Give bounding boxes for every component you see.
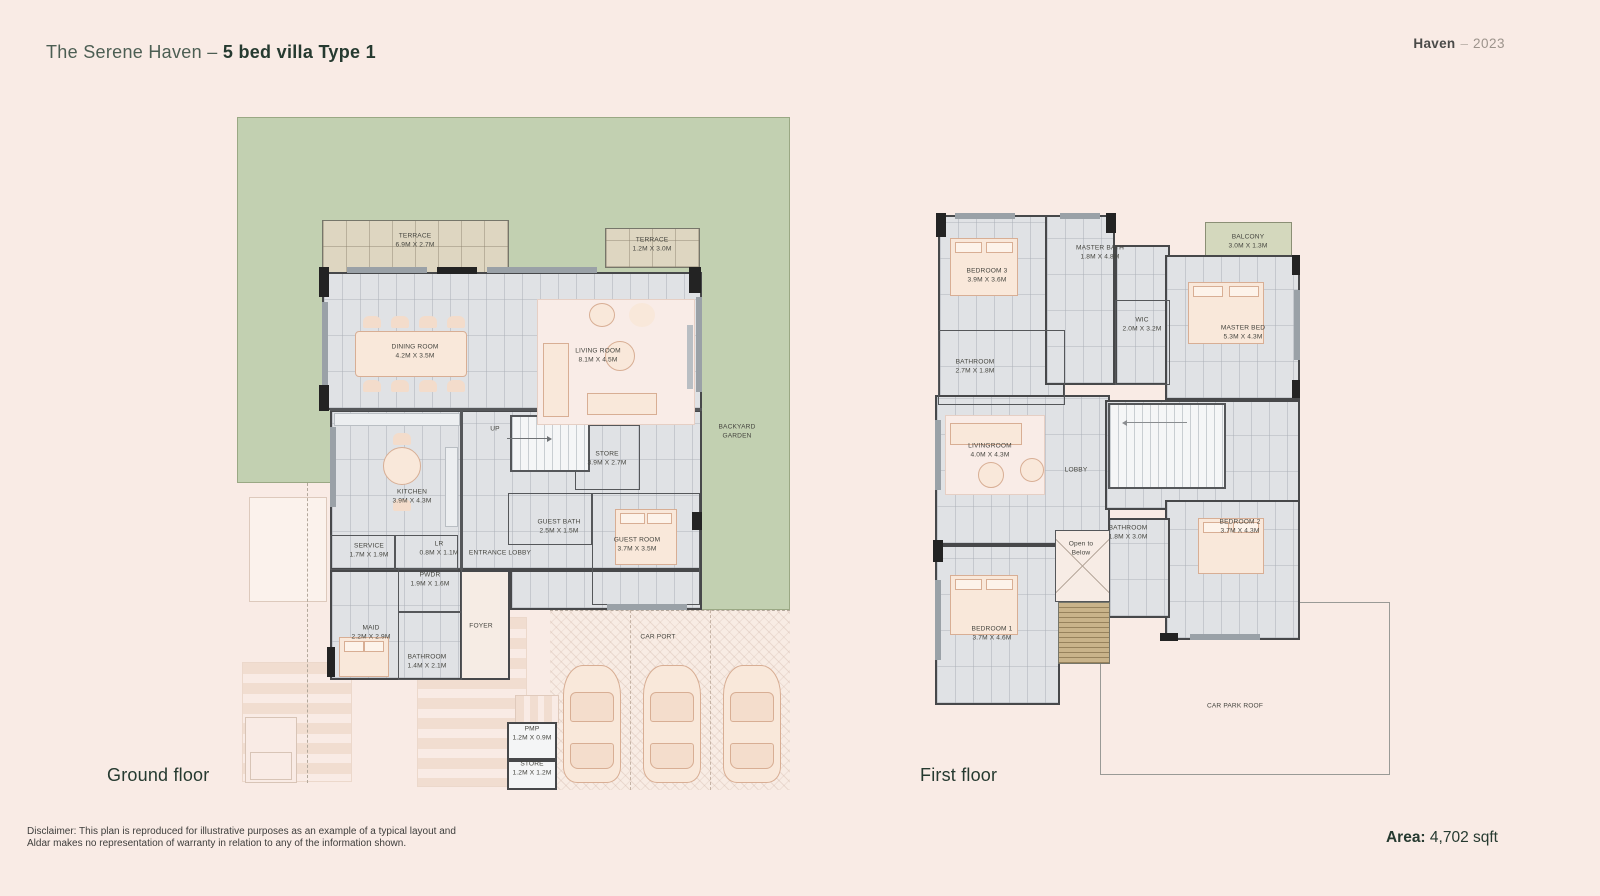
label-car-park-roof: CAR PARK ROOF	[1207, 703, 1263, 712]
first-floor-label: First floor	[920, 765, 997, 786]
label-bathroom-1-4m-x-2-1m: BATHROOM1.4M X 2.1M	[407, 653, 446, 670]
label-bathroom-2-7m-x-1-8m: BATHROOM2.7M X 1.8M	[955, 358, 994, 375]
label-bedroom-1-3-7m-x-4-6m: BEDROOM 13.7M X 4.6M	[972, 625, 1013, 642]
label-maid-2-2m-x-2-9m: MAID2.2M X 2.9M	[351, 624, 390, 641]
window	[1060, 213, 1100, 219]
wall-segment	[1292, 380, 1300, 398]
brochure-page: { "header": { "title_regular": "The Sere…	[0, 0, 1600, 896]
maid-room-bed	[339, 637, 389, 677]
wall-segment	[1106, 213, 1116, 233]
brand-name: Haven	[1413, 36, 1455, 51]
wall-segment	[327, 647, 335, 677]
car	[723, 665, 781, 783]
label-pwdr-1-9m-x-1-6m: PWDR1.9M X 1.6M	[410, 571, 449, 588]
wall-segment	[1292, 255, 1300, 275]
stair-arrow	[1125, 422, 1187, 423]
label-bedroom-3-3-9m-x-3-6m: BEDROOM 33.9M X 3.6M	[967, 267, 1008, 284]
label-bathroom-1-8m-x-3-0m: BATHROOM1.8M X 3.0M	[1108, 524, 1147, 541]
label-livingroom-4-0m-x-4-3m: LIVINGROOM4.0M X 4.3M	[968, 442, 1012, 459]
kitchen-chairs	[393, 433, 411, 445]
kitchen-counter-right	[445, 447, 458, 527]
label-foyer: FOYER	[469, 623, 492, 632]
wall-partition-kitchen	[460, 410, 463, 570]
label-store-1-2m-x-1-2m: STORE1.2M X 1.2M	[512, 760, 551, 777]
label-terrace-6-9m-x-2-7m: TERRACE6.9M X 2.7M	[395, 232, 434, 249]
window	[1294, 290, 1300, 360]
planter-boxes	[245, 717, 297, 783]
entry-steps	[515, 695, 559, 723]
sofa	[543, 343, 569, 417]
label-master-bed-5-3m-x-4-3m: MASTER BED5.3M X 4.3M	[1221, 324, 1265, 341]
armchair	[1020, 458, 1044, 482]
kitchen-counter-top	[334, 413, 460, 426]
window	[955, 213, 1015, 219]
ground-floor-plan: TERRACE6.9M X 2.7MTERRACE1.2M X 3.0MDINI…	[237, 117, 790, 790]
wall-segment	[689, 267, 701, 293]
backyard-garden-side-strip	[700, 477, 790, 610]
disclaimer-text: Disclaimer: This plan is reproduced for …	[27, 826, 456, 849]
area-total: Area: 4,702 sqft	[1386, 829, 1498, 847]
wall-segment	[692, 512, 702, 530]
wood-deck-bridge	[1058, 602, 1110, 664]
window	[935, 580, 941, 660]
wall-segment	[936, 213, 946, 237]
carport-divider	[630, 610, 631, 790]
label-dining-room-4-2m-x-3-5m: DINING ROOM4.2M X 3.5M	[391, 343, 438, 360]
page-title-bold: 5 bed villa Type 1	[223, 42, 376, 62]
wall-segment	[437, 267, 477, 274]
label-pmp-1-2m-x-0-9m: PMP1.2M X 0.9M	[512, 725, 551, 742]
label-master-bath-1-8m-x-4-8m: MASTER BATH1.8M X 4.8M	[1076, 244, 1124, 261]
label-backyard-garden: BACKYARDGARDEN	[719, 423, 756, 440]
wall-segment	[319, 267, 329, 297]
ground-floor-label: Ground floor	[107, 765, 209, 786]
window	[322, 302, 328, 387]
label-service-1-7m-x-1-9m: SERVICE1.7M X 1.9M	[349, 542, 388, 559]
tv-console	[687, 325, 693, 389]
brand-separator: –	[1455, 36, 1473, 51]
label-guest-bath-2-5m-x-1-5m: GUEST BATH2.5M X 1.5M	[537, 518, 580, 535]
page-title-regular: The Serene Haven	[46, 42, 202, 62]
wall-segment	[933, 540, 943, 562]
label-guest-room-3-7m-x-3-5m: GUEST ROOM3.7M X 3.5M	[614, 536, 660, 553]
label-open-to-below: Open toBelow	[1069, 540, 1094, 557]
site-boundary-dashed	[307, 483, 308, 783]
window	[607, 604, 687, 610]
armchair	[589, 303, 615, 327]
stair-void	[1108, 403, 1226, 489]
wall-segment	[1160, 633, 1178, 641]
dining-chairs	[363, 316, 381, 328]
window	[1190, 634, 1260, 640]
area-label: Area:	[1386, 829, 1426, 846]
page-title-separator: –	[202, 42, 223, 62]
window	[347, 267, 427, 273]
window	[330, 427, 336, 507]
brand-mark: Haven–2023	[1413, 36, 1505, 51]
coffee-table	[978, 462, 1004, 488]
brand-year: 2023	[1473, 36, 1505, 51]
wic-outline	[1115, 300, 1170, 385]
label-living-room-8-1m-x-4-5m: LIVING ROOM8.1M X 4.5M	[575, 347, 621, 364]
window	[487, 267, 597, 273]
first-floor-plan: BEDROOM 33.9M X 3.6MMASTER BATH1.8M X 4.…	[920, 210, 1400, 790]
label-store-3-9m-x-2-7m: STORE3.9M X 2.7M	[587, 450, 626, 467]
label-lr-0-8m-x-1-1m: LR0.8M X 1.1M	[419, 540, 458, 557]
label-up: UP	[490, 426, 499, 435]
car	[643, 665, 701, 783]
label-lobby: LOBBY	[1065, 467, 1088, 476]
label-kitchen-3-9m-x-4-3m: KITCHEN3.9M X 4.3M	[392, 488, 431, 505]
label-entrance-lobby: ENTRANCE LOBBY	[469, 550, 531, 559]
label-terrace-1-2m-x-3-0m: TERRACE1.2M X 3.0M	[632, 236, 671, 253]
sofa-2	[587, 393, 657, 415]
wall-segment	[319, 385, 329, 411]
window	[935, 420, 941, 490]
label-wic-2-0m-x-3-2m: WIC2.0M X 3.2M	[1122, 316, 1161, 333]
window	[696, 297, 702, 392]
car	[563, 665, 621, 783]
carport-divider	[710, 610, 711, 790]
label-car-port: CAR PORT	[640, 634, 675, 643]
up-arrow	[507, 438, 549, 439]
label-balcony-3-0m-x-1-3m: BALCONY3.0M X 1.3M	[1228, 233, 1267, 250]
page-title: The Serene Haven – 5 bed villa Type 1	[46, 42, 376, 63]
disclaimer-line-2: Aldar makes no representation of warrant…	[27, 838, 456, 850]
disclaimer-line-1: Disclaimer: This plan is reproduced for …	[27, 826, 456, 838]
kitchen-table	[383, 447, 421, 485]
side-patio	[249, 497, 327, 602]
label-bedroom-2-3-7m-x-4-3m: BEDROOM 23.7M X 4.3M	[1220, 518, 1261, 535]
area-value: 4,702 sqft	[1426, 829, 1498, 846]
